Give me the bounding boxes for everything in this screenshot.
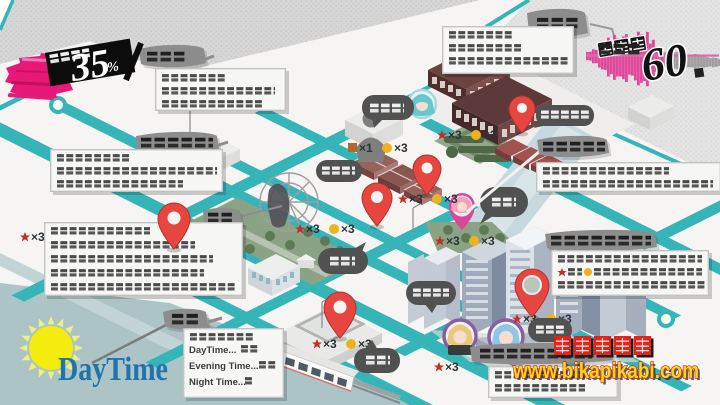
svg-text:Night Time...: Night Time... (189, 377, 246, 388)
svg-text:×3: ×3 (448, 128, 462, 142)
svg-text:×3: ×3 (31, 230, 45, 244)
svg-text:×3: ×3 (446, 234, 460, 248)
svg-text:×3: ×3 (306, 222, 320, 236)
svg-text:×3: ×3 (341, 222, 355, 236)
svg-text:×3: ×3 (483, 128, 497, 142)
svg-text:×3: ×3 (445, 360, 459, 374)
svg-text:Evening Time...: Evening Time... (189, 361, 259, 372)
svg-text:DayTime...: DayTime... (189, 345, 236, 356)
svg-text:×1: ×1 (359, 141, 373, 155)
svg-text:DayTime: DayTime (58, 351, 168, 388)
svg-text:%: % (106, 59, 120, 76)
svg-text:×3: ×3 (444, 192, 458, 206)
svg-text:×3: ×3 (409, 192, 423, 206)
svg-text:×3: ×3 (481, 234, 495, 248)
svg-text:×3: ×3 (394, 141, 408, 155)
svg-text:www.bikapikabi.com: www.bikapikabi.com (512, 358, 699, 383)
svg-text:60: 60 (638, 33, 691, 91)
